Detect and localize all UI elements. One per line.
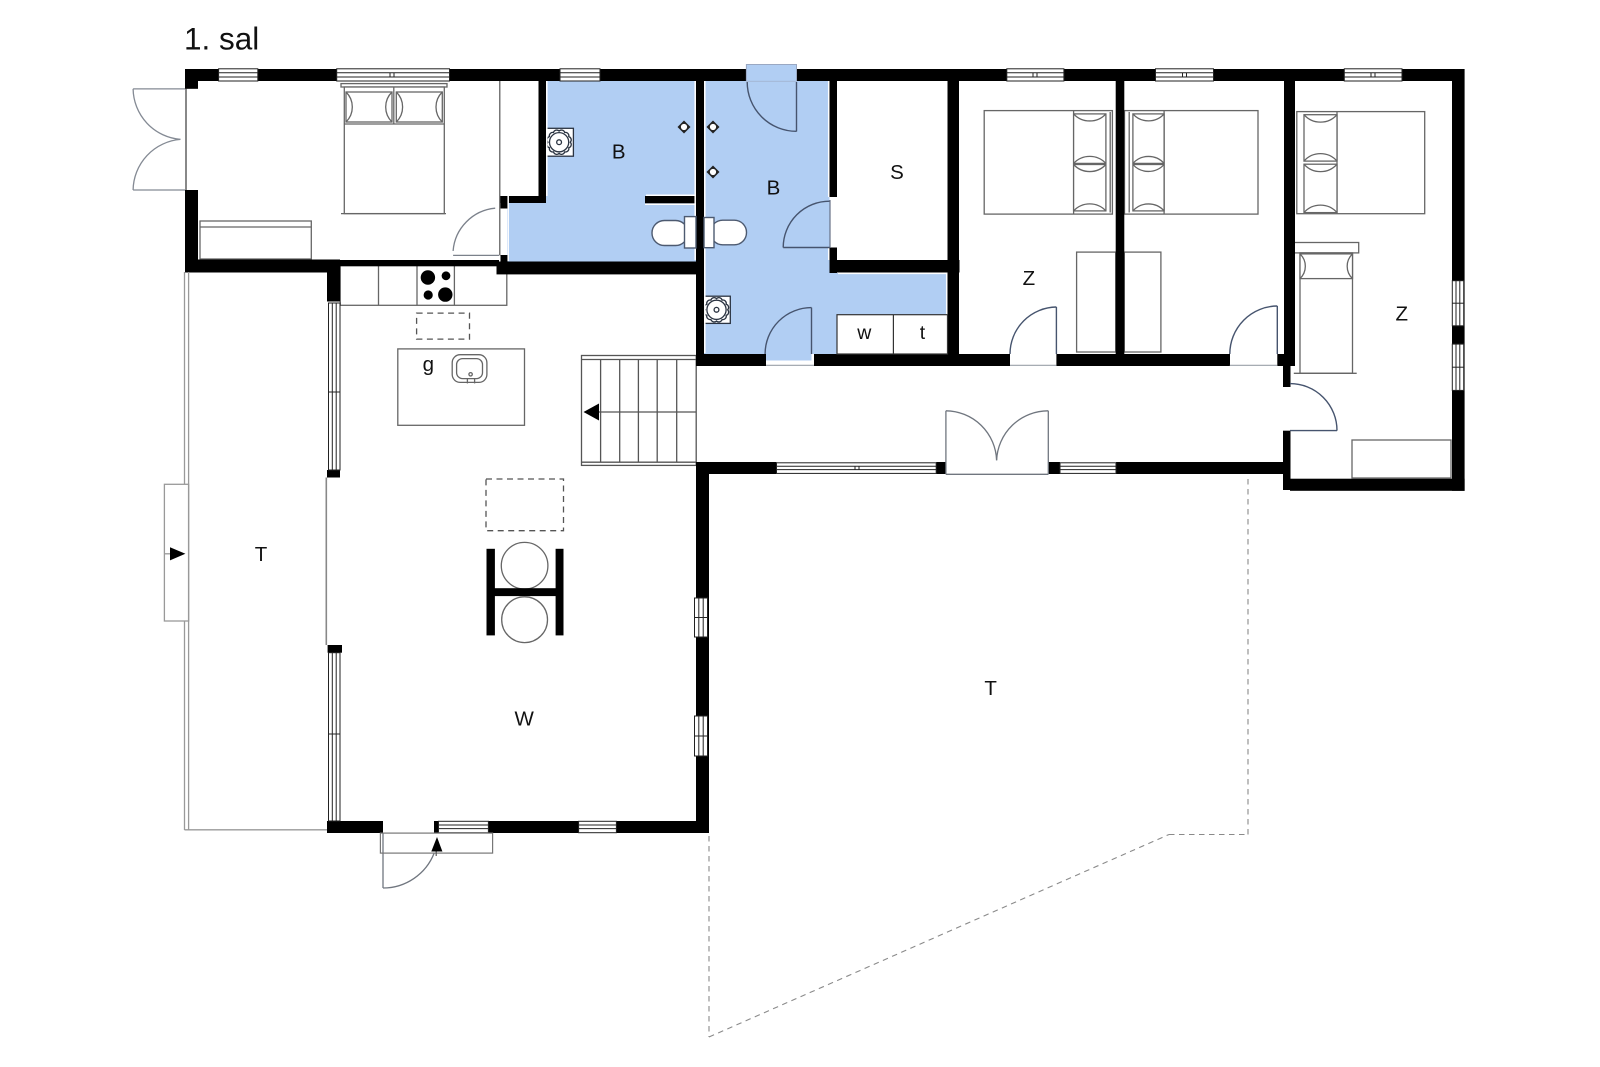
svg-text:S: S bbox=[890, 161, 904, 184]
svg-text:w: w bbox=[856, 322, 872, 344]
svg-text:1. sal: 1. sal bbox=[184, 21, 259, 57]
svg-text:B: B bbox=[612, 140, 626, 163]
svg-text:t: t bbox=[920, 322, 926, 344]
svg-text:T: T bbox=[984, 677, 997, 700]
svg-text:B: B bbox=[767, 177, 781, 200]
svg-text:Z: Z bbox=[1023, 267, 1036, 290]
svg-text:T: T bbox=[255, 543, 268, 566]
svg-text:Z: Z bbox=[1396, 302, 1409, 325]
svg-text:g: g bbox=[423, 353, 434, 376]
svg-text:W: W bbox=[515, 708, 535, 731]
